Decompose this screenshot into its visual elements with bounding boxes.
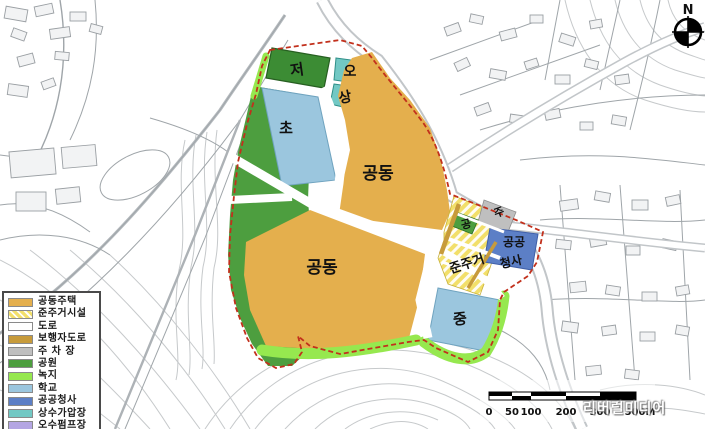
- legend-item-apartment: 공동주택: [8, 296, 99, 308]
- label-reservoir: 저: [289, 60, 305, 80]
- legend-swatch-water-pressure: [8, 409, 33, 418]
- legend-swatch-pedestrian-road: [8, 335, 33, 344]
- label-sewage-pump: 오: [344, 64, 357, 80]
- legend-item-school: 학교: [8, 383, 99, 395]
- map-legend: 공동주택 준주거시설 도로 보행자도로 주 차 장 공원 녹지 학교 공공청사 …: [2, 291, 101, 429]
- watermark: 리버럴미디어: [583, 398, 666, 418]
- label-public-office-1: 공공: [503, 235, 525, 249]
- legend-item-parking: 주 차 장: [8, 346, 99, 358]
- legend-swatch-park: [8, 359, 33, 368]
- label-middle-school: 중: [452, 309, 468, 328]
- legend-swatch-public-office: [8, 397, 33, 406]
- legend-swatch-school: [8, 384, 33, 393]
- label-apartment-south: 공동: [306, 258, 338, 278]
- legend-item-semi-residential: 준주거시설: [8, 308, 99, 320]
- compass-n-label: N: [683, 3, 694, 18]
- legend-label-green: 녹지: [38, 371, 57, 381]
- legend-item-pedestrian-road: 보행자도로: [8, 333, 99, 345]
- legend-swatch-apartment: [8, 298, 33, 307]
- legend-item-public-office: 공공청사: [8, 395, 99, 407]
- legend-label-road: 도로: [38, 322, 57, 332]
- legend-label-semi-residential: 준주거시설: [38, 309, 87, 319]
- scale-tick-0: 0: [486, 407, 493, 418]
- legend-item-road: 도로: [8, 321, 99, 333]
- legend-item-park: 공원: [8, 358, 99, 370]
- legend-item-green: 녹지: [8, 370, 99, 382]
- legend-label-parking: 주 차 장: [38, 347, 75, 357]
- label-apartment-north: 공동: [362, 164, 394, 184]
- legend-label-park: 공원: [38, 359, 57, 369]
- legend-swatch-parking: [8, 347, 33, 356]
- legend-label-public-office: 공공청사: [38, 396, 77, 406]
- map-canvas: 저 오 상 초 공동 공동 준주거 공 주 공공 청사 중 N 0 50 100…: [0, 0, 705, 429]
- legend-label-pedestrian-road: 보행자도로: [38, 334, 87, 344]
- legend-swatch-green: [8, 372, 33, 381]
- scale-tick-200: 200: [556, 407, 577, 418]
- legend-label-apartment: 공동주택: [38, 297, 77, 307]
- legend-label-sewage-pump: 오수펌프장: [38, 421, 87, 429]
- legend-swatch-road: [8, 322, 33, 331]
- legend-item-sewage-pump: 오수펌프장: [8, 420, 99, 429]
- landuse-plan-map: 저 오 상 초 공동 공동 준주거 공 주 공공 청사 중 N 0 50 100…: [0, 0, 705, 429]
- legend-label-water-pressure: 상수가압장: [38, 409, 87, 419]
- scale-tick-100: 100: [521, 407, 542, 418]
- legend-label-school: 학교: [38, 384, 57, 394]
- legend-swatch-sewage-pump: [8, 421, 33, 429]
- legend-swatch-semi-residential: [8, 310, 33, 319]
- scale-tick-50: 50: [505, 407, 519, 418]
- label-elementary-school: 초: [279, 119, 293, 137]
- legend-item-water-pressure: 상수가압장: [8, 408, 99, 420]
